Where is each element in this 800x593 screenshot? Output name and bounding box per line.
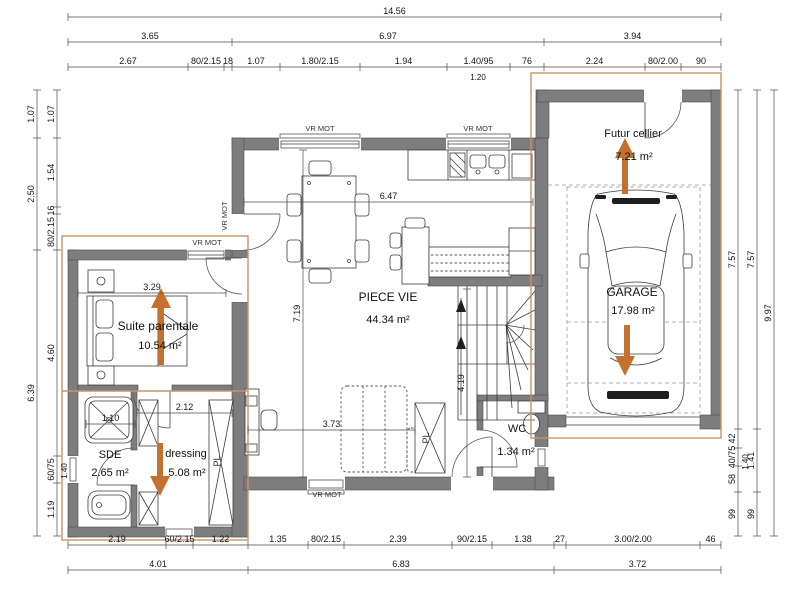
vr-mot-label: VR MOT bbox=[463, 124, 493, 133]
nightstand bbox=[88, 270, 114, 292]
dim-label: 1.07 bbox=[26, 105, 36, 123]
vr-mot-label: VR MOT bbox=[305, 124, 335, 133]
dim-label: 2.67 bbox=[119, 56, 137, 66]
dim-label: 46 bbox=[705, 534, 715, 544]
dim-label: 1.07 bbox=[247, 56, 265, 66]
dim-label: 80/2.15 bbox=[311, 534, 341, 544]
dim-label: 90/2.15 bbox=[457, 534, 487, 544]
room-name-dressing: dressing bbox=[165, 448, 207, 460]
dim-label: 80/2.00 bbox=[648, 56, 678, 66]
dim-label: 1.19 bbox=[46, 501, 56, 519]
dim-label: 4.01 bbox=[149, 559, 167, 569]
dim-label: 1.41 bbox=[746, 452, 756, 470]
dim-sub-label: 1.20 bbox=[470, 73, 486, 82]
room-area-suite: 10.54 m² bbox=[138, 340, 182, 352]
dim-label: 14.56 bbox=[383, 6, 406, 16]
dim-label: 6.97 bbox=[379, 31, 397, 41]
room-area-garage: 17.98 m² bbox=[611, 305, 655, 317]
dim-label: 2.19 bbox=[108, 534, 126, 544]
window-living-top-1 bbox=[279, 134, 361, 151]
dim-label: 2.50 bbox=[26, 185, 36, 203]
garage-door-threshold bbox=[566, 417, 700, 425]
desk bbox=[245, 389, 277, 455]
suite-door bbox=[206, 258, 249, 302]
dim-label: 7.19 bbox=[292, 305, 302, 323]
window-living-top-2 bbox=[446, 134, 511, 151]
dim-label: 60/75 bbox=[46, 458, 56, 481]
dim-label: 3.94 bbox=[624, 31, 642, 41]
washbasin bbox=[88, 491, 130, 519]
dim-label: 1.22 bbox=[212, 534, 230, 544]
car bbox=[580, 190, 692, 416]
room-name-sde: SDE bbox=[99, 449, 122, 461]
dim-label: 3.72 bbox=[629, 559, 647, 569]
vr-mot-label: VR MOT bbox=[312, 490, 342, 499]
dressing-closet bbox=[139, 400, 158, 525]
floor-plan-page: Suite parentale 10.54 m² SDE 2.65 m² dre… bbox=[0, 0, 800, 593]
dim-label: 80/2.15 bbox=[46, 217, 56, 247]
back-door bbox=[451, 437, 493, 491]
room-area-piece-vie: 44.34 m² bbox=[366, 314, 410, 326]
window-wc-right bbox=[534, 447, 549, 467]
dim-label: 4.60 bbox=[46, 344, 56, 362]
sofa bbox=[341, 386, 427, 472]
kitchen-counter bbox=[408, 150, 535, 180]
pl-closet-label: PL bbox=[421, 432, 431, 443]
dim-label: 6.39 bbox=[26, 384, 36, 402]
nightstand bbox=[88, 366, 114, 385]
dining-table bbox=[287, 161, 369, 283]
dim-label: 7.57 bbox=[746, 251, 756, 269]
dim-label: 3.65 bbox=[141, 31, 159, 41]
floor-plan: Suite parentale 10.54 m² SDE 2.65 m² dre… bbox=[0, 0, 800, 593]
dim-label: 1.38 bbox=[514, 534, 532, 544]
stair-direction-arrow bbox=[456, 298, 466, 415]
dim-label: 3.73 bbox=[323, 419, 341, 429]
dim-label: 40/75 bbox=[727, 446, 737, 469]
dim-label: 27 bbox=[555, 534, 565, 544]
room-name-garage: GARAGE bbox=[606, 285, 657, 299]
dim-label: 2.39 bbox=[389, 534, 407, 544]
room-area-wc: 1.34 m² bbox=[497, 446, 535, 458]
dim-label: 9.97 bbox=[763, 304, 773, 322]
dim-label: 1.07 bbox=[46, 105, 56, 123]
dim-label: 99 bbox=[727, 509, 737, 519]
dim-label: 2.24 bbox=[586, 56, 604, 66]
dim-sub-label: 1.40 bbox=[60, 463, 69, 479]
dim-label: 60/2.15 bbox=[164, 534, 194, 544]
bench bbox=[429, 247, 511, 277]
dim-label: 2.12 bbox=[176, 402, 194, 412]
dim-label: 4.19 bbox=[456, 374, 466, 392]
dim-label: 1.35 bbox=[269, 534, 287, 544]
dim-label: 3.00/2.00 bbox=[614, 534, 652, 544]
dim-label: 3.29 bbox=[143, 282, 161, 292]
entrance-door bbox=[231, 214, 280, 250]
room-name-cellier: Futur cellier bbox=[604, 128, 662, 140]
dim-label: 58 bbox=[727, 474, 737, 484]
room-name-piece-vie: PIECE VIE bbox=[359, 290, 418, 304]
dim-label: 90 bbox=[696, 56, 706, 66]
dim-label: 99 bbox=[746, 509, 756, 519]
dim-label: 1.40/95 bbox=[463, 56, 493, 66]
dim-label: 7.57 bbox=[727, 251, 737, 269]
dim-label: 80/2.15 bbox=[191, 56, 221, 66]
dim-label: 1.80/2.15 bbox=[301, 56, 339, 66]
vr-mot-label: VR MOT bbox=[192, 238, 222, 247]
room-area-sde: 2.65 m² bbox=[91, 467, 129, 479]
dim-label: 6.83 bbox=[392, 559, 410, 569]
room-area-dressing: 5.08 m² bbox=[168, 467, 206, 479]
breakfast-table bbox=[390, 218, 429, 284]
dim-label: 1.94 bbox=[395, 56, 413, 66]
dim-label: 76 bbox=[522, 56, 532, 66]
vr-mot-label: VR MOT bbox=[220, 201, 229, 231]
room-name-wc: WC bbox=[508, 423, 526, 435]
room-name-suite: Suite parentale bbox=[118, 319, 199, 333]
pl-closet-label: PL bbox=[212, 455, 222, 466]
dim-label: 16 bbox=[46, 205, 56, 215]
dim-label: 1.10 bbox=[102, 413, 120, 423]
cellier-arrow-up bbox=[615, 138, 635, 194]
dim-label: 18 bbox=[223, 56, 233, 66]
dim-label: 6.47 bbox=[380, 191, 398, 201]
dim-label: 1.54 bbox=[46, 164, 56, 182]
dim-label: 42 bbox=[727, 433, 737, 443]
room-area-cellier: 7.21 m² bbox=[615, 151, 653, 163]
